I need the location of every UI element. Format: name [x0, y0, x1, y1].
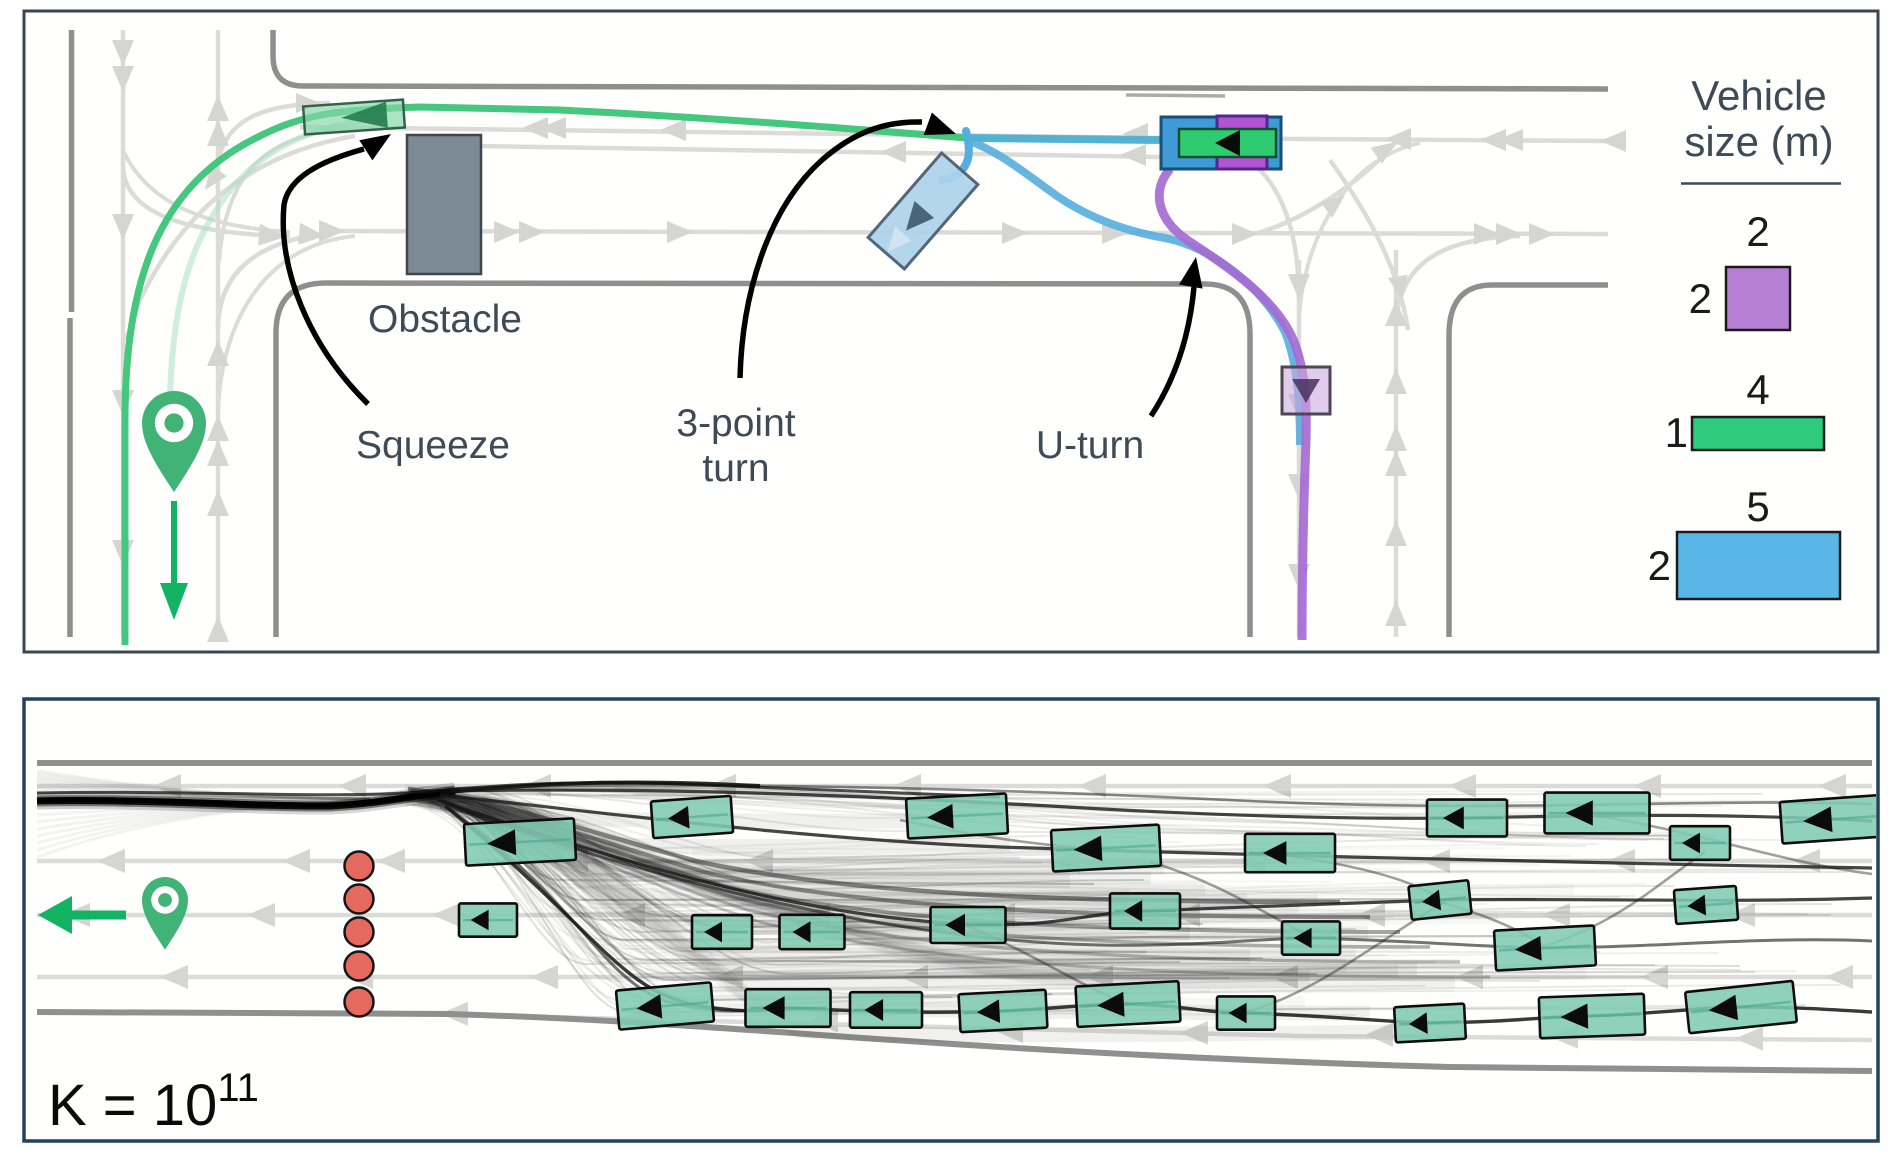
svg-text:2: 2 [1689, 275, 1712, 322]
svg-text:2: 2 [1746, 208, 1769, 255]
svg-text:Obstacle: Obstacle [368, 298, 522, 341]
svg-text:4: 4 [1746, 366, 1769, 413]
svg-text:3-point: 3-point [676, 402, 795, 445]
svg-text:2: 2 [1648, 542, 1671, 589]
svg-text:size (m): size (m) [1684, 118, 1833, 165]
svg-text:turn: turn [702, 447, 769, 490]
svg-text:5: 5 [1746, 483, 1769, 530]
svg-text:1: 1 [1665, 409, 1688, 456]
svg-text:Squeeze: Squeeze [356, 424, 510, 467]
svg-text:U-turn: U-turn [1036, 424, 1144, 467]
svg-text:Vehicle: Vehicle [1691, 72, 1826, 119]
